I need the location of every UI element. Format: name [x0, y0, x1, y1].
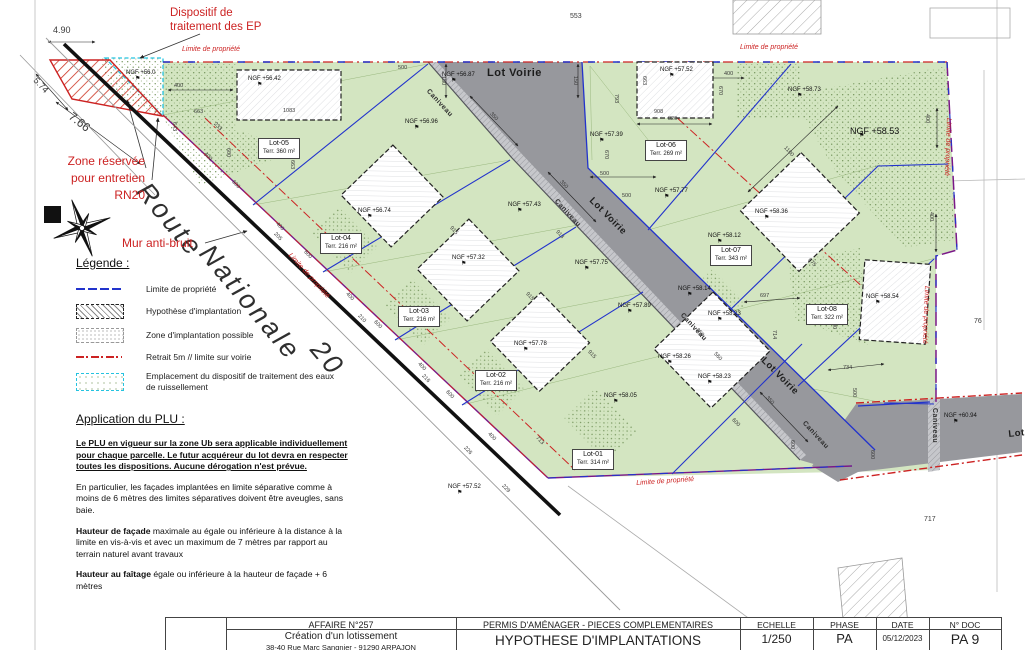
lot-id: Lot-07 [715, 247, 747, 256]
lot-voirie-label: Lot Voirie [587, 196, 628, 237]
lot-id: Lot-05 [263, 140, 295, 149]
dimension-label: 915 [586, 350, 596, 360]
dimension-label: 600 [230, 180, 240, 190]
legend-swatch-retrait [76, 356, 122, 358]
dimension-label: 400 [344, 292, 354, 302]
plu-title: Application du PLU : [76, 412, 350, 426]
elevation-flag-icon: ⚑ [667, 360, 672, 366]
document-title: HYPOTHESE D'IMPLANTATIONS [456, 633, 740, 648]
legend-label-retrait: Retrait 5m // limite sur voirie [146, 352, 338, 363]
ngf-elevation-label: NGF +57.39 [590, 132, 623, 138]
dimension-label: 400 [416, 362, 426, 372]
dimension-label: 663 [641, 76, 647, 85]
dimension-label: 663 [194, 110, 203, 116]
dimension-label: 600 [225, 148, 231, 157]
plu-paragraph-1: Le PLU en vigueur sur la zone Ub sera ap… [76, 438, 350, 473]
dimension-label: 350 [558, 180, 568, 190]
lot-id: Lot-08 [811, 306, 843, 315]
dimension-label: 5.74 [31, 76, 50, 95]
lot-area: Terr. 360 m² [263, 149, 295, 157]
note-dispositif-line1: Dispositif de [170, 6, 261, 20]
elevation-flag-icon: ⚑ [717, 317, 722, 323]
note-dispositif-line2: traitement des EP [170, 20, 261, 34]
legend-label-zone-possible: Zone d'implantation possible [146, 330, 338, 341]
dimension-label: 350 [488, 112, 498, 122]
dimension-label: 560 [712, 352, 722, 362]
elevation-flag-icon: ⚑ [414, 125, 419, 131]
legend-panel: Légende : Limite de propriété Hypothèse … [76, 256, 338, 402]
lot-parcel-label: Lot-08Terr. 322 m² [806, 304, 848, 325]
dimension-label: 150 [440, 76, 446, 85]
elevation-flag-icon: ⚑ [461, 261, 466, 267]
lot-parcel-label: Lot-04Terr. 216 m² [320, 233, 362, 254]
project-title: Création d'un lotissement [226, 631, 456, 642]
lot-id: Lot-04 [325, 235, 357, 244]
lot-id: Lot-03 [403, 308, 435, 317]
dimension-label: 500 [398, 66, 407, 72]
dimension-label: 553 [570, 13, 582, 20]
legend-item-hypothese: Hypothèse d'implantation [76, 304, 338, 319]
limite-propriete-label: Limite de propriété [636, 476, 694, 487]
dimension-label: 76 [974, 318, 982, 325]
dimension-label: 663 [289, 160, 295, 169]
plu-paragraph-2: En particulier, les façades implantées e… [76, 482, 350, 517]
plu-panel: Application du PLU : Le PLU en vigueur s… [76, 412, 350, 602]
ngf-elevation-label: NGF +56.0 [126, 70, 156, 76]
ngf-elevation-label: NGF +57.52 [448, 484, 481, 490]
ngf-elevation-label: NGF +58.14 [678, 286, 711, 292]
plu-p3-lead: Hauteur de façade [76, 526, 151, 536]
echelle-value: 1/250 [740, 632, 813, 646]
dimension-label: 820 [668, 117, 677, 123]
phase-label: PHASE [813, 620, 876, 630]
elevation-flag-icon: ⚑ [707, 380, 712, 386]
ngf-elevation-label: NGF +56.74 [358, 208, 391, 214]
ngf-elevation-label: NGF +60.94 [944, 413, 977, 419]
lot-area: Terr. 314 m² [577, 460, 609, 468]
ngf-elevation-label: NGF +58.05 [604, 393, 637, 399]
dimension-label: 714 [771, 330, 777, 339]
limite-propriete-label: Limite de propriété [740, 44, 798, 51]
ngf-elevation-label: NGF +58.73 [788, 87, 821, 93]
permis-title: PERMIS D'AMÉNAGER - PIECES COMPLEMENTAIR… [456, 620, 740, 630]
lot-area: Terr. 216 m² [403, 317, 435, 325]
echelle-label: ECHELLE [740, 620, 813, 630]
dimension-label: 500 [600, 172, 609, 178]
limite-propriete-label: Limite de propriété [943, 118, 952, 176]
note-zone-line1: Zone réservée [30, 153, 145, 170]
dimension-label: 713 [534, 436, 544, 446]
elevation-flag-icon: ⚑ [664, 194, 669, 200]
lot-id: Lot-02 [480, 372, 512, 381]
lot-parcel-label: Lot-03Terr. 216 m² [398, 306, 440, 327]
lot-parcel-label: Lot-06Terr. 269 m² [645, 140, 687, 161]
legend-swatch-limite [76, 288, 122, 290]
elevation-flag-icon: ⚑ [859, 133, 864, 139]
dimension-label: 643 [171, 122, 177, 131]
affaire-number: AFFAIRE N°257 [226, 620, 456, 630]
ngf-elevation-label: NGF +58.12 [708, 233, 741, 239]
ndoc-value: PA 9 [929, 631, 1001, 647]
dimension-label: 600 [372, 320, 382, 330]
ngf-elevation-label: NGF +58.23 [698, 374, 731, 380]
dimension-label: 216 [420, 374, 430, 384]
dimension-label: 697 [760, 294, 769, 300]
ngf-elevation-label: NGF +58.54 [866, 294, 899, 300]
lot-voirie-label: Lot Voirie [759, 356, 800, 397]
note-dispositif-ep: Dispositif de traitement des EP [170, 6, 261, 35]
legend-label-ep: Emplacement du dispositif de traitement … [146, 371, 338, 392]
legend-item-retrait: Retrait 5m // limite sur voirie [76, 352, 338, 363]
dimension-label: 400 [486, 432, 496, 442]
lot-voirie-label: Lot Voirie [487, 68, 542, 79]
phase-value: PA [813, 631, 876, 646]
ngf-elevation-label: NGF +56.42 [248, 76, 281, 82]
dimension-label: 600 [869, 450, 875, 459]
elevation-flag-icon: ⚑ [875, 300, 880, 306]
elevation-flag-icon: ⚑ [584, 266, 589, 272]
dimension-label: 734 [843, 366, 852, 372]
ngf-elevation-label: NGF +56.96 [405, 119, 438, 125]
title-block: AFFAIRE N°257 PERMIS D'AMÉNAGER - PIECES… [165, 617, 1002, 650]
note-zone-line3: RN20 [30, 187, 145, 204]
lot-voirie-label: Lot Voirie [1008, 425, 1025, 439]
lot-parcel-label: Lot-02Terr. 216 m² [475, 370, 517, 391]
elevation-flag-icon: ⚑ [451, 78, 456, 84]
dimension-label: 350 [764, 396, 774, 406]
ngf-elevation-label: NGF +56.87 [442, 72, 475, 78]
elevation-flag-icon: ⚑ [613, 399, 618, 405]
plu-paragraph-4: Hauteur au faîtage égale ou inférieure à… [76, 569, 350, 592]
elevation-flag-icon: ⚑ [627, 309, 632, 315]
plu-p4-lead: Hauteur au faîtage [76, 569, 151, 579]
legend-swatch-ep [76, 373, 124, 391]
dimension-label: 717 [924, 516, 936, 523]
lot-area: Terr. 216 m² [480, 381, 512, 389]
legend-label-hypothese: Hypothèse d'implantation [146, 306, 338, 317]
limite-propriete-label: Limite de propriété [182, 46, 240, 53]
dimension-label: 4.90 [53, 26, 71, 35]
lot-id: Lot-06 [650, 142, 682, 151]
note-zone-reservee: Zone réservée pour entretien RN20 [30, 153, 145, 203]
elevation-flag-icon: ⚑ [523, 347, 528, 353]
date-label: DATE [876, 620, 929, 630]
caniveau-label: Caniveau [553, 198, 582, 228]
elevation-flag-icon: ⚑ [953, 419, 958, 425]
ngf-elevation-label: NGF +57.77 [655, 188, 688, 194]
caniveau-label: Caniveau [679, 312, 708, 342]
dimension-label: 915 [524, 292, 534, 302]
dimension-label: 7.66 [67, 110, 93, 134]
legend-swatch-zone-possible [76, 328, 124, 343]
dimension-label: 670 [717, 86, 723, 95]
elevation-flag-icon: ⚑ [764, 215, 769, 221]
dimension-label: 793 [613, 94, 619, 103]
elevation-flag-icon: ⚑ [517, 208, 522, 214]
legend-swatch-hypothese [76, 304, 124, 319]
ngf-elevation-label: NGF +58.23 [708, 311, 741, 317]
ngf-elevation-label: NGF +57.75 [575, 260, 608, 266]
dimension-label: 600 [789, 440, 795, 449]
lot-area: Terr. 216 m² [325, 244, 357, 252]
ngf-elevation-label: NGF +57.43 [508, 202, 541, 208]
elevation-flag-icon: ⚑ [797, 93, 802, 99]
dimension-label: 150 [572, 76, 578, 85]
dimension-label: 670 [603, 150, 609, 159]
ngf-elevation-label: NGF +57.52 [660, 67, 693, 73]
ndoc-label: N° DOC [929, 620, 1001, 630]
legend-item-zone-possible: Zone d'implantation possible [76, 328, 338, 343]
caniveau-label: Caniveau [425, 88, 454, 118]
elevation-flag-icon: ⚑ [599, 138, 604, 144]
dimension-label: 233 [212, 122, 222, 132]
dimension-label: 600 [444, 390, 454, 400]
caniveau-label: Caniveau [801, 420, 830, 450]
caniveau-label: Caniveau [931, 408, 938, 443]
lot-parcel-label: Lot-01Terr. 314 m² [572, 449, 614, 470]
drawing-sheet: { "colors": { "red": "#cc2222", "blue": … [0, 0, 1025, 650]
dimension-label: 226 [462, 446, 472, 456]
limite-propriete-label: Limite de propriété [921, 286, 930, 344]
dimension-label: 675 [806, 258, 816, 268]
note-zone-line2: pour entretien [30, 170, 145, 187]
plu-paragraph-3: Hauteur de façade maximale au égale ou i… [76, 526, 350, 561]
lot-area: Terr. 343 m² [715, 256, 747, 264]
dimension-label: 400 [724, 72, 733, 78]
legend-label-limite: Limite de propriété [146, 284, 338, 295]
dimension-label: 400 [928, 212, 934, 221]
lot-parcel-label: Lot-05Terr. 360 m² [258, 138, 300, 159]
dimension-label: 229 [500, 484, 510, 494]
dimension-label: 1083 [283, 109, 295, 115]
elevation-flag-icon: ⚑ [367, 214, 372, 220]
ngf-elevation-label: NGF +57.78 [514, 341, 547, 347]
ngf-elevation-label: NGF +58.26 [658, 354, 691, 360]
lot-area: Terr. 322 m² [811, 315, 843, 323]
dimension-label: 400 [924, 114, 930, 123]
legend-item-ep: Emplacement du dispositif de traitement … [76, 371, 338, 392]
dimension-label: 600 [730, 418, 740, 428]
dimension-label: 1100 [782, 146, 794, 158]
ngf-elevation-label: NGF +58.36 [755, 209, 788, 215]
dimension-label: 500 [622, 194, 631, 200]
date-value: 05/12/2023 [876, 634, 929, 643]
elevation-flag-icon: ⚑ [135, 76, 140, 82]
dimension-label: 205 [272, 232, 282, 242]
site-plan-document: { "colors": { "red": "#cc2222", "blue": … [0, 0, 1025, 650]
note-mur-anti-bruit: Mur anti-bruit [122, 236, 193, 251]
legend-item-limite: Limite de propriété [76, 284, 338, 295]
dimension-label: 915 [448, 226, 458, 236]
elevation-flag-icon: ⚑ [457, 490, 462, 496]
lot-parcel-label: Lot-07Terr. 343 m² [710, 245, 752, 266]
lot-area: Terr. 269 m² [650, 151, 682, 159]
lot-id: Lot-01 [577, 451, 609, 460]
dimension-label: 400 [174, 84, 183, 90]
ngf-elevation-label: NGF +58.53 [850, 127, 899, 136]
dimension-label: 500 [851, 388, 857, 397]
ngf-elevation-label: NGF +57.32 [452, 255, 485, 261]
project-address: 38-40 Rue Marc Sangnier - 91290 ARPAJON [226, 643, 456, 650]
legend-title: Légende : [76, 256, 338, 270]
dimension-label: 913 [554, 230, 564, 240]
dimension-label: 400 [202, 152, 212, 162]
ngf-elevation-label: NGF +57.89 [618, 303, 651, 309]
elevation-flag-icon: ⚑ [669, 73, 674, 79]
elevation-flag-icon: ⚑ [687, 292, 692, 298]
dimension-label: 210 [356, 314, 366, 324]
dimension-label: 908 [654, 110, 663, 116]
elevation-flag-icon: ⚑ [257, 82, 262, 88]
